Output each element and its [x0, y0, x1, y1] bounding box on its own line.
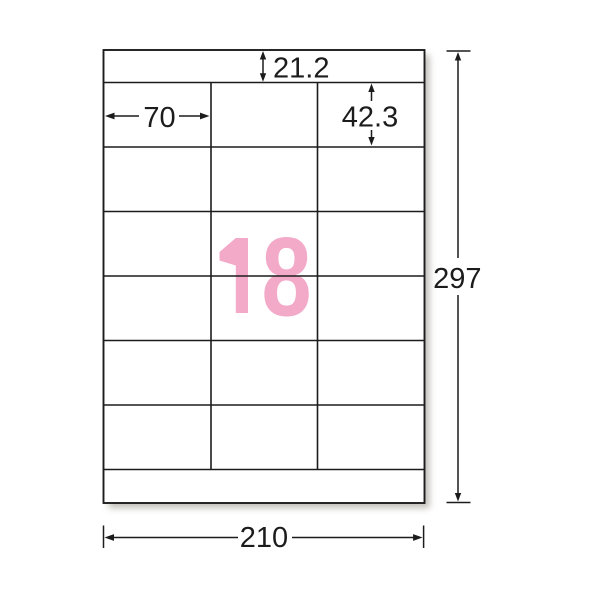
svg-text:297: 297 [433, 263, 481, 295]
svg-text:70: 70 [143, 102, 175, 134]
svg-text:42.3: 42.3 [342, 101, 398, 133]
svg-text:210: 210 [240, 522, 288, 554]
svg-text:8: 8 [262, 215, 312, 340]
svg-text:21.2: 21.2 [273, 53, 329, 85]
